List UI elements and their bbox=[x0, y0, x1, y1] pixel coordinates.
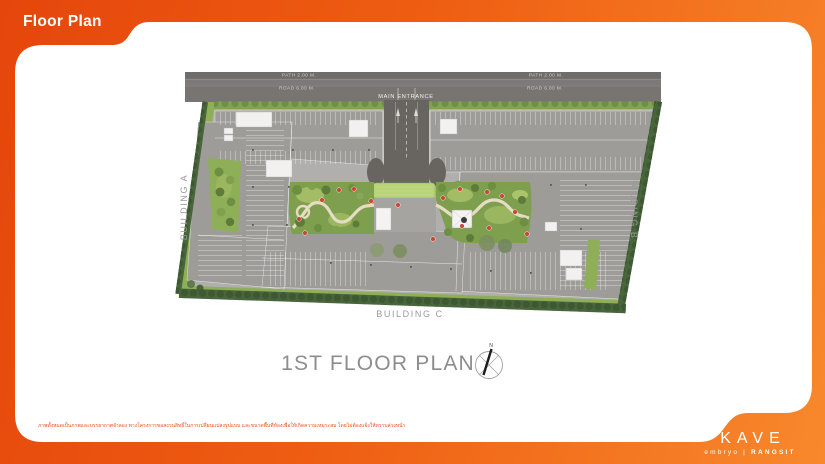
site-plan bbox=[175, 72, 662, 313]
main-entrance-label: MAIN ENTRANCE bbox=[378, 94, 433, 100]
brand-sub-right: RANGSIT bbox=[751, 449, 796, 456]
disclaimer-text: ภาพทั้งหมดเป็นภาพและบรรยากาศจำลอง ทางโคร… bbox=[38, 422, 405, 430]
path-label-right: PATH 2.00 M. bbox=[529, 74, 563, 79]
brand-divider: | bbox=[743, 449, 747, 456]
plan-caption: 1ST FLOOR PLAN bbox=[281, 352, 475, 376]
road-label-right: ROAD 6.00 M. bbox=[527, 87, 563, 92]
left-garden-pocket bbox=[208, 158, 241, 233]
slide-canvas: N Floor Plan PATH 2.00 M. ROAD 6.00 M. P… bbox=[0, 0, 825, 464]
brand-sub-left: embryo bbox=[704, 449, 739, 456]
brand-subtitle: embryo | RANGSIT bbox=[691, 449, 809, 456]
building-b-label: BUILDING B bbox=[629, 172, 639, 239]
floor-plan-graphic: N bbox=[0, 0, 825, 464]
brand-name: KAVE bbox=[697, 430, 809, 448]
central-lawn bbox=[373, 183, 435, 198]
building-c-label: BUILDING C bbox=[376, 309, 444, 319]
building-a-label: BUILDING A bbox=[179, 174, 189, 241]
page-title: Floor Plan bbox=[23, 13, 102, 31]
path-label-left: PATH 2.00 M. bbox=[282, 73, 316, 78]
compass-north-label: N bbox=[489, 343, 493, 349]
brand-logo: KAVE embryo | RANGSIT bbox=[691, 430, 809, 456]
road-label-left: ROAD 6.00 M. bbox=[279, 87, 315, 92]
